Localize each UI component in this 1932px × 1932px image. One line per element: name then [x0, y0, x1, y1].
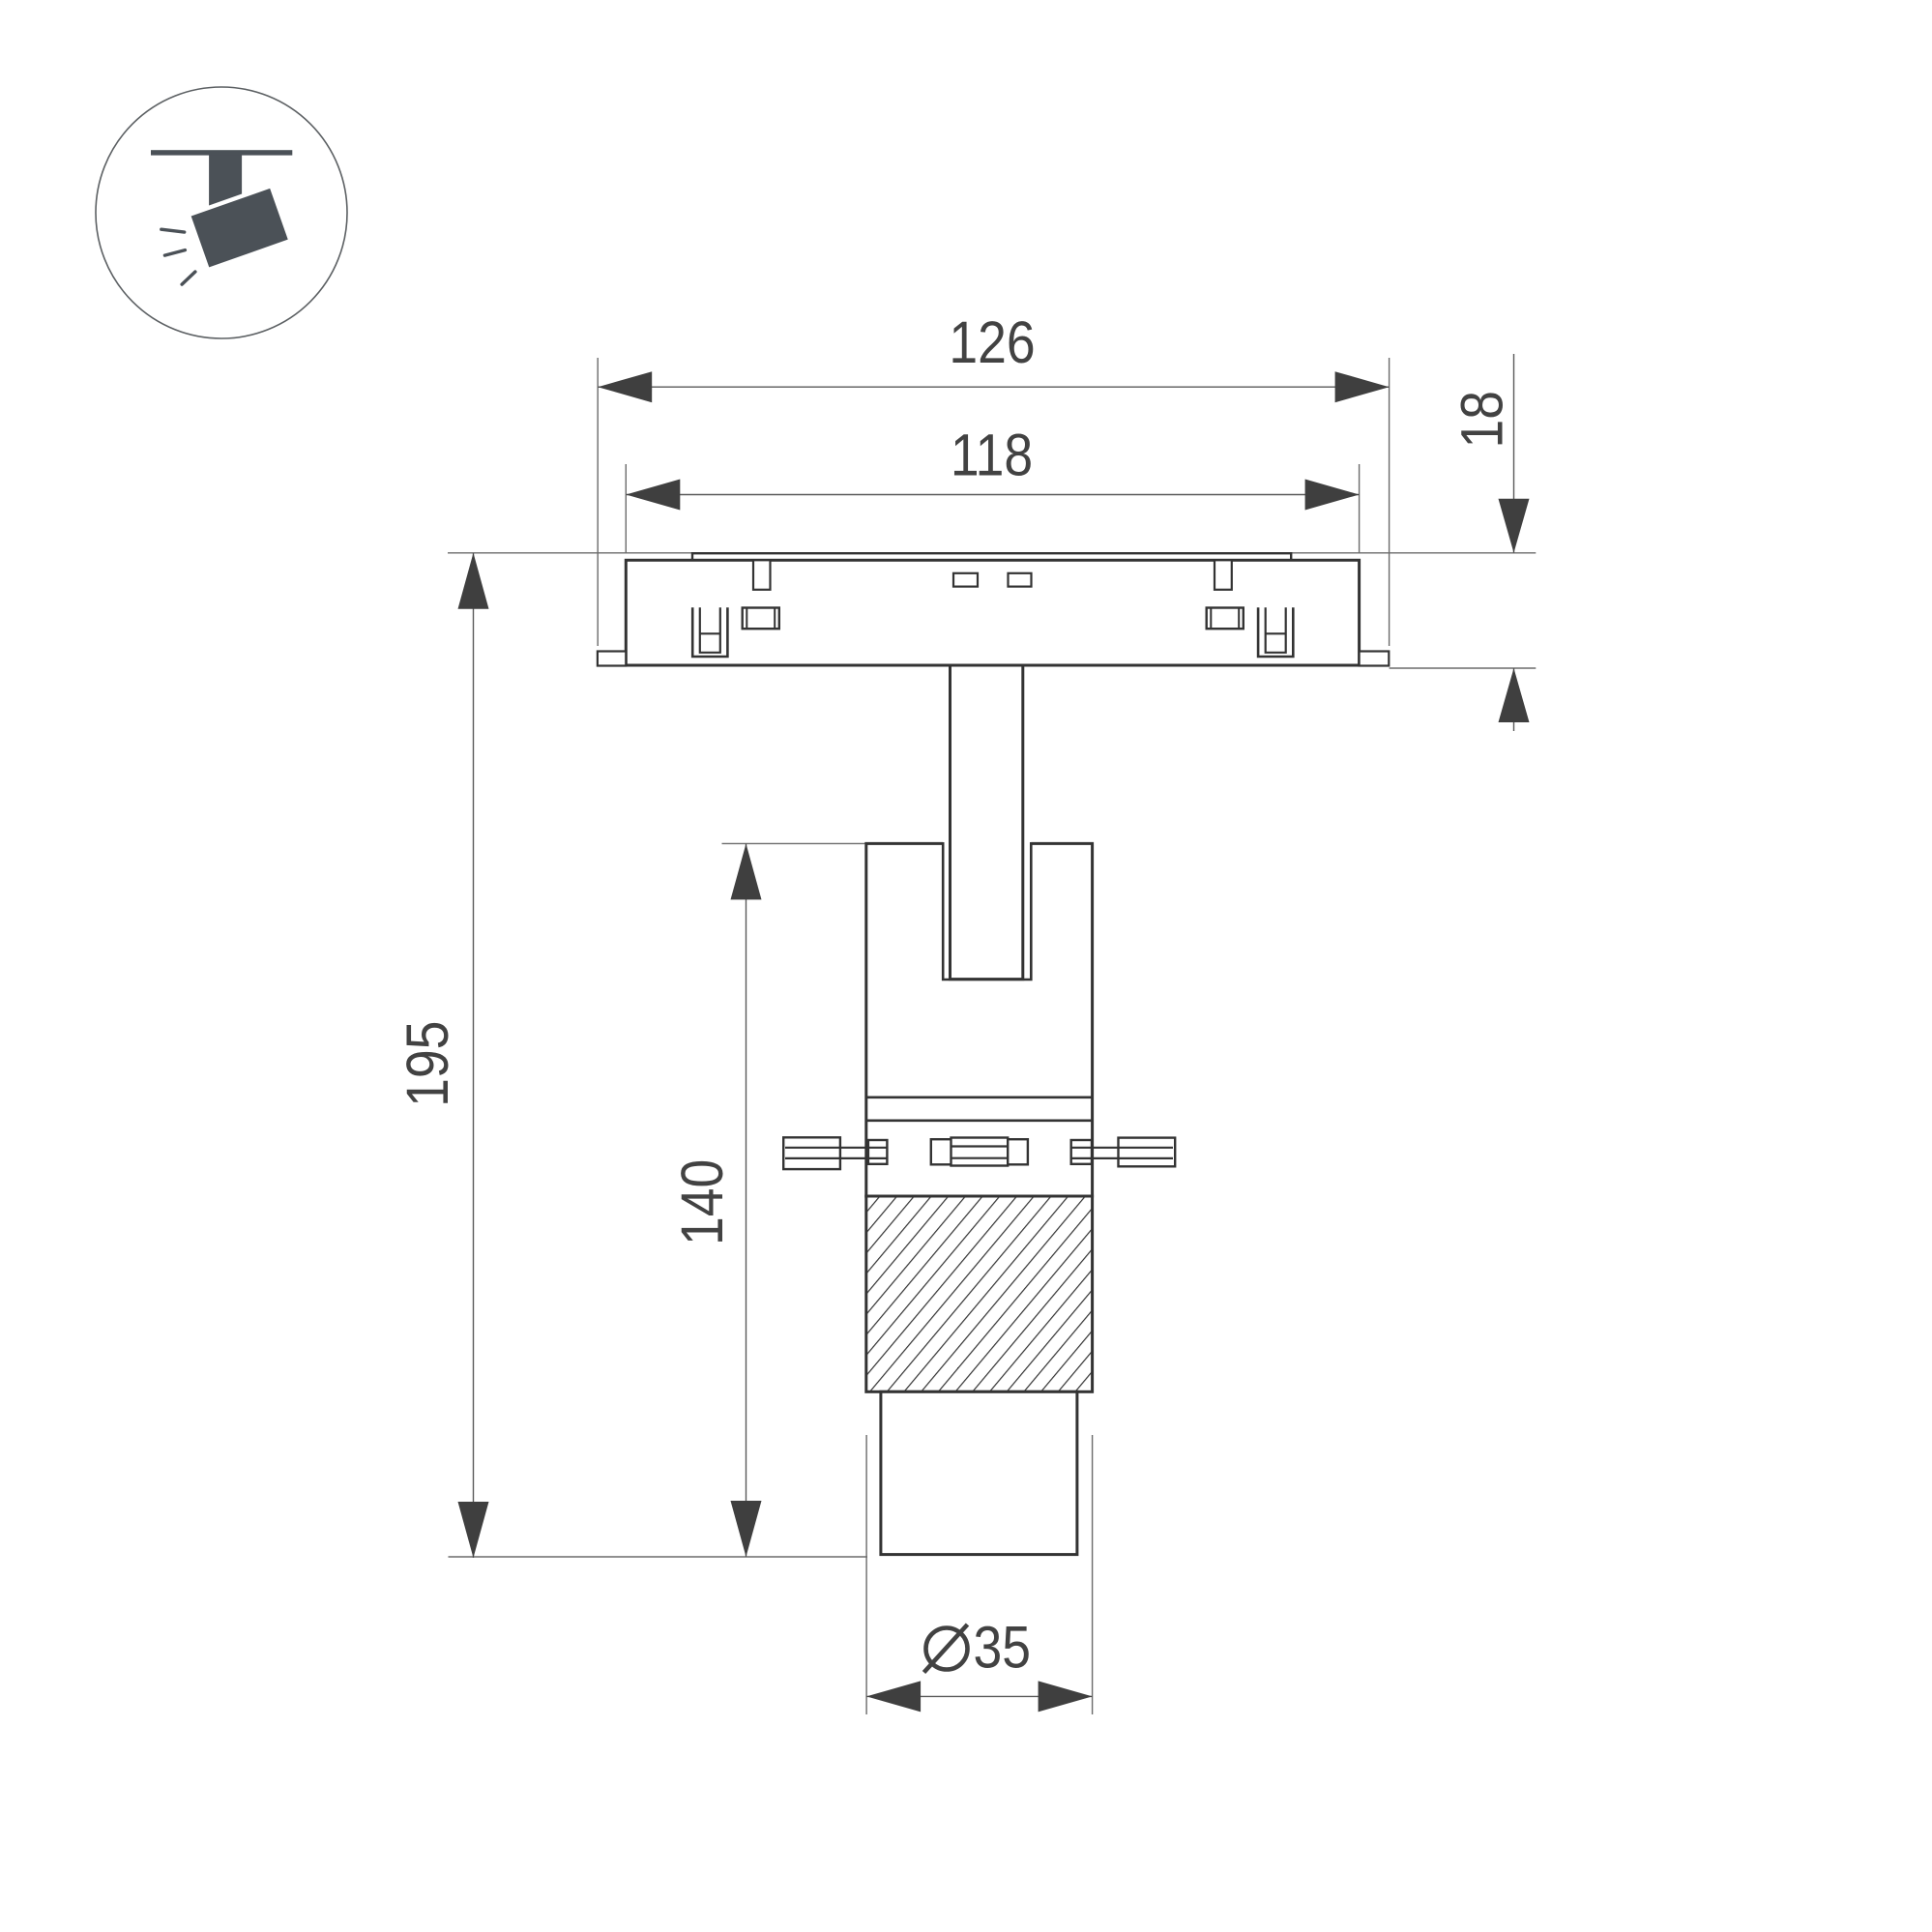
svg-text:126: 126 — [949, 309, 1035, 375]
svg-text:195: 195 — [395, 1021, 461, 1107]
svg-text:140: 140 — [670, 1159, 736, 1245]
svg-text:118: 118 — [951, 423, 1033, 488]
svg-text:35: 35 — [973, 1615, 1031, 1681]
svg-text:18: 18 — [1449, 391, 1515, 449]
